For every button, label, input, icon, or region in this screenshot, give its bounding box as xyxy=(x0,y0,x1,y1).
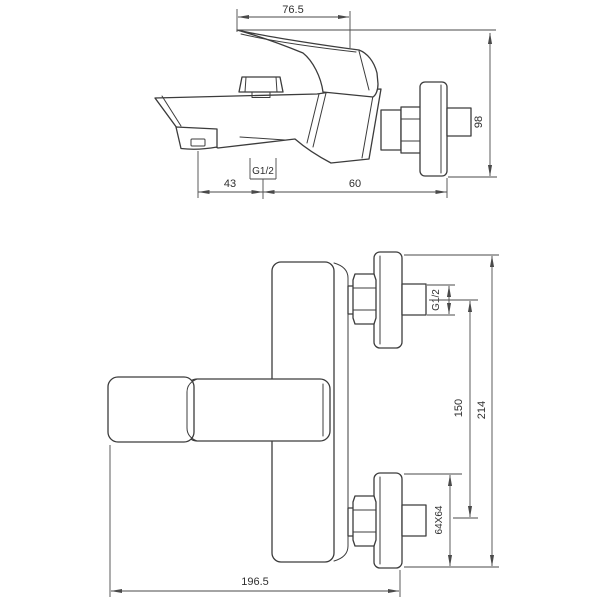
hex-nut-bottom xyxy=(353,496,376,546)
escutcheon-top xyxy=(374,252,402,348)
dim-g12-side-label: G1/2 xyxy=(252,166,274,177)
thread-stub-top xyxy=(402,284,426,315)
faucet-body-side xyxy=(155,89,381,163)
connection-pipe-side xyxy=(381,110,401,150)
front-view: G1/2 150 214 64X64 196.5 xyxy=(108,252,499,597)
body-column-side-face xyxy=(334,263,348,561)
side-view: 76.5 98 G1/2 43 60 xyxy=(155,4,497,199)
dim-150-label: 150 xyxy=(453,399,465,417)
dim-196-5-label: 196.5 xyxy=(241,576,269,588)
dim-43-label: 43 xyxy=(224,178,236,190)
dim-214-label: 214 xyxy=(476,401,488,419)
dim-64x64-label: 64X64 xyxy=(434,505,445,534)
dim-98-label: 98 xyxy=(473,116,485,128)
thread-stub-bottom xyxy=(402,505,426,536)
dim-76-5-label: 76.5 xyxy=(282,4,303,16)
escutcheon-bottom xyxy=(374,473,402,568)
handle-front-bar xyxy=(108,377,194,442)
technical-drawing-page: 76.5 98 G1/2 43 60 xyxy=(0,0,600,600)
hex-nut-side xyxy=(401,107,422,153)
dim-60-label: 60 xyxy=(349,178,361,190)
thread-stub-side xyxy=(447,108,471,136)
faucet-dimension-drawing: 76.5 98 G1/2 43 60 xyxy=(0,0,600,600)
hex-nut-top xyxy=(353,274,376,324)
dim-g12-side-extensions xyxy=(250,158,276,199)
escutcheon-side xyxy=(420,82,447,176)
body-front-bar xyxy=(187,379,330,441)
